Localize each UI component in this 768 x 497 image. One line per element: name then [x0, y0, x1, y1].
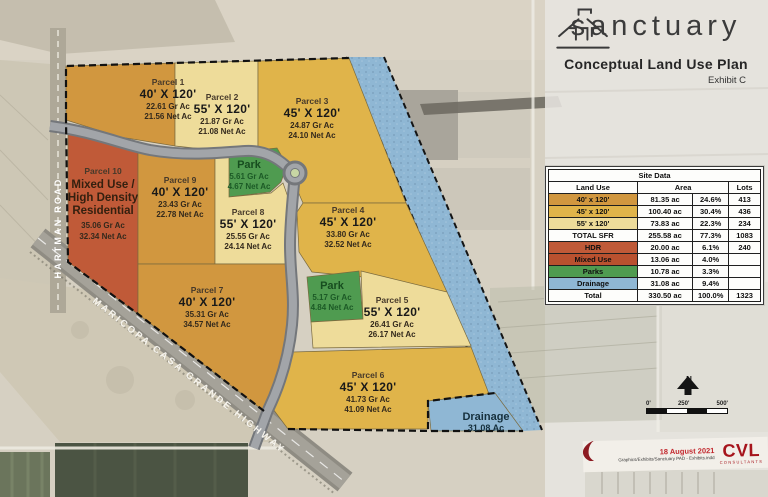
svg-text:23.43 Gr Ac: 23.43 Gr Ac [158, 200, 202, 209]
col-header-area: Area [638, 182, 729, 194]
svg-text:Parcel 4: Parcel 4 [332, 205, 365, 215]
firm-tagline: CONSULTANTS [720, 459, 764, 465]
land-use-cell: 55' x 120' [549, 218, 638, 230]
title-block: 18 August 2021 Graphics/Exhibits/Sanctua… [583, 437, 768, 473]
col-header-land-use: Land Use [549, 182, 638, 194]
svg-text:21.87 Gr Ac: 21.87 Gr Ac [200, 117, 244, 126]
scale-tick-500: 500' [717, 401, 728, 407]
svg-text:41.09 Net Ac: 41.09 Net Ac [344, 405, 392, 414]
svg-text:Parcel 2: Parcel 2 [206, 92, 239, 102]
svg-text:Parcel 6: Parcel 6 [352, 370, 385, 380]
svg-text:45' X 120': 45' X 120' [284, 106, 341, 120]
svg-text:Residential: Residential [72, 205, 133, 217]
svg-text:Parcel 8: Parcel 8 [232, 207, 265, 217]
svg-text:21.08 Net Ac: 21.08 Net Ac [198, 127, 246, 136]
land-use-cell: 40' x 120' [549, 194, 638, 206]
land-use-cell: Drainage [549, 278, 638, 290]
table-row: HDR 20.00 ac 6.1% 240 [549, 242, 761, 254]
table-row-total: Total 330.50 ac 100.0% 1323 [549, 290, 761, 302]
svg-text:26.17 Net Ac: 26.17 Net Ac [368, 330, 416, 339]
svg-text:40' X 120': 40' X 120' [140, 87, 197, 101]
svg-text:4.84 Net Ac: 4.84 Net Ac [311, 303, 354, 312]
svg-text:4.67 Net Ac: 4.67 Net Ac [228, 182, 271, 191]
svg-text:Mixed Use /: Mixed Use / [71, 179, 135, 191]
svg-text:26.41 Gr Ac: 26.41 Gr Ac [370, 320, 414, 329]
svg-text:55' X 120': 55' X 120' [194, 102, 251, 116]
sanctuary-house-icon [552, 6, 614, 52]
svg-text:Parcel 5: Parcel 5 [376, 295, 409, 305]
svg-text:22.78 Net Ac: 22.78 Net Ac [156, 210, 204, 219]
svg-text:5.61 Gr Ac: 5.61 Gr Ac [229, 172, 269, 181]
land-use-cell: 45' x 120' [549, 206, 638, 218]
scale-tick-0: 0' [646, 401, 651, 407]
table-row: Drainage 31.08 ac 9.4% [549, 278, 761, 290]
svg-text:33.80 Gr Ac: 33.80 Gr Ac [326, 230, 370, 239]
table-row: 45' x 120' 100.40 ac 30.4% 436 [549, 206, 761, 218]
drainage-label: Drainage 31.08 Ac [462, 411, 509, 433]
svg-text:24.14 Net Ac: 24.14 Net Ac [224, 242, 272, 251]
table-row-total-sfr: TOTAL SFR 255.58 ac 77.3% 1083 [549, 230, 761, 242]
svg-text:5.17 Gr Ac: 5.17 Gr Ac [312, 293, 352, 302]
svg-text:34.57 Net Ac: 34.57 Net Ac [183, 320, 231, 329]
exhibit-label: Exhibit C [552, 75, 760, 86]
site-data-table: Site Data Land Use Area Lots 40' x 120' … [545, 166, 764, 305]
svg-text:32.52 Net Ac: 32.52 Net Ac [324, 240, 372, 249]
svg-text:41.73 Gr Ac: 41.73 Gr Ac [346, 395, 390, 404]
svg-text:24.10 Net Ac: 24.10 Net Ac [288, 131, 336, 140]
cvl-swoosh-icon [583, 441, 595, 461]
table-row: Mixed Use 13.06 ac 4.0% [549, 254, 761, 266]
svg-text:40' X 120': 40' X 120' [179, 295, 236, 309]
svg-text:22.61 Gr Ac: 22.61 Gr Ac [146, 102, 190, 111]
firm-name: CVL [719, 441, 763, 460]
svg-text:55' X 120': 55' X 120' [364, 305, 421, 319]
svg-text:Parcel 10: Parcel 10 [84, 166, 122, 176]
table-row: Parks 10.78 ac 3.3% [549, 266, 761, 278]
svg-text:31.08 Ac: 31.08 Ac [468, 423, 504, 433]
file-reference: Graphics/Exhibits/Sanctuary PAD - Exhibi… [618, 455, 714, 463]
land-use-cell: Parks [549, 266, 638, 278]
svg-text:55' X 120': 55' X 120' [220, 217, 277, 231]
svg-text:24.87 Gr Ac: 24.87 Gr Ac [290, 121, 334, 130]
hartman-road-label: HARTMAN ROAD [53, 178, 63, 279]
scale-tick-250: 250' [678, 401, 689, 407]
table-title: Site Data [549, 170, 761, 182]
svg-text:32.34 Net Ac: 32.34 Net Ac [79, 232, 127, 241]
svg-text:Parcel 3: Parcel 3 [296, 96, 329, 106]
north-arrow: N [676, 376, 702, 384]
svg-text:Parcel 7: Parcel 7 [191, 285, 224, 295]
svg-text:40' X 120': 40' X 120' [152, 185, 209, 199]
land-use-cell: HDR [549, 242, 638, 254]
svg-text:Drainage: Drainage [462, 411, 509, 423]
svg-text:35.06 Gr Ac: 35.06 Gr Ac [81, 221, 125, 230]
north-arrow-icon [676, 376, 700, 396]
logo-block: sanctuary Conceptual Land Use Plan Exhib… [552, 6, 760, 86]
col-header-lots: Lots [729, 182, 761, 194]
svg-text:35.31 Gr Ac: 35.31 Gr Ac [185, 310, 229, 319]
svg-text:High Density: High Density [68, 192, 139, 204]
scale-bar: 0' 250' 500' [646, 401, 728, 414]
cvl-logo: CVL CONSULTANTS [719, 441, 763, 465]
svg-text:Park: Park [237, 159, 262, 171]
svg-text:Parcel 1: Parcel 1 [152, 77, 185, 87]
land-use-plan-sheet: HARTMAN ROAD MARICOPA CASA GRANDE HIGHWA… [0, 0, 768, 497]
svg-text:45' X 120': 45' X 120' [320, 215, 377, 229]
land-use-cell: Mixed Use [549, 254, 638, 266]
table-row: 55' x 120' 73.83 ac 22.3% 234 [549, 218, 761, 230]
scale-bar-segments [646, 408, 728, 414]
svg-text:Park: Park [320, 280, 345, 292]
table-row: 40' x 120' 81.35 ac 24.6% 413 [549, 194, 761, 206]
svg-text:21.56 Net Ac: 21.56 Net Ac [144, 112, 192, 121]
svg-text:25.55 Gr Ac: 25.55 Gr Ac [226, 232, 270, 241]
plan-title: Conceptual Land Use Plan [552, 56, 760, 72]
svg-text:Parcel 9: Parcel 9 [164, 175, 197, 185]
svg-text:45' X 120': 45' X 120' [340, 380, 397, 394]
